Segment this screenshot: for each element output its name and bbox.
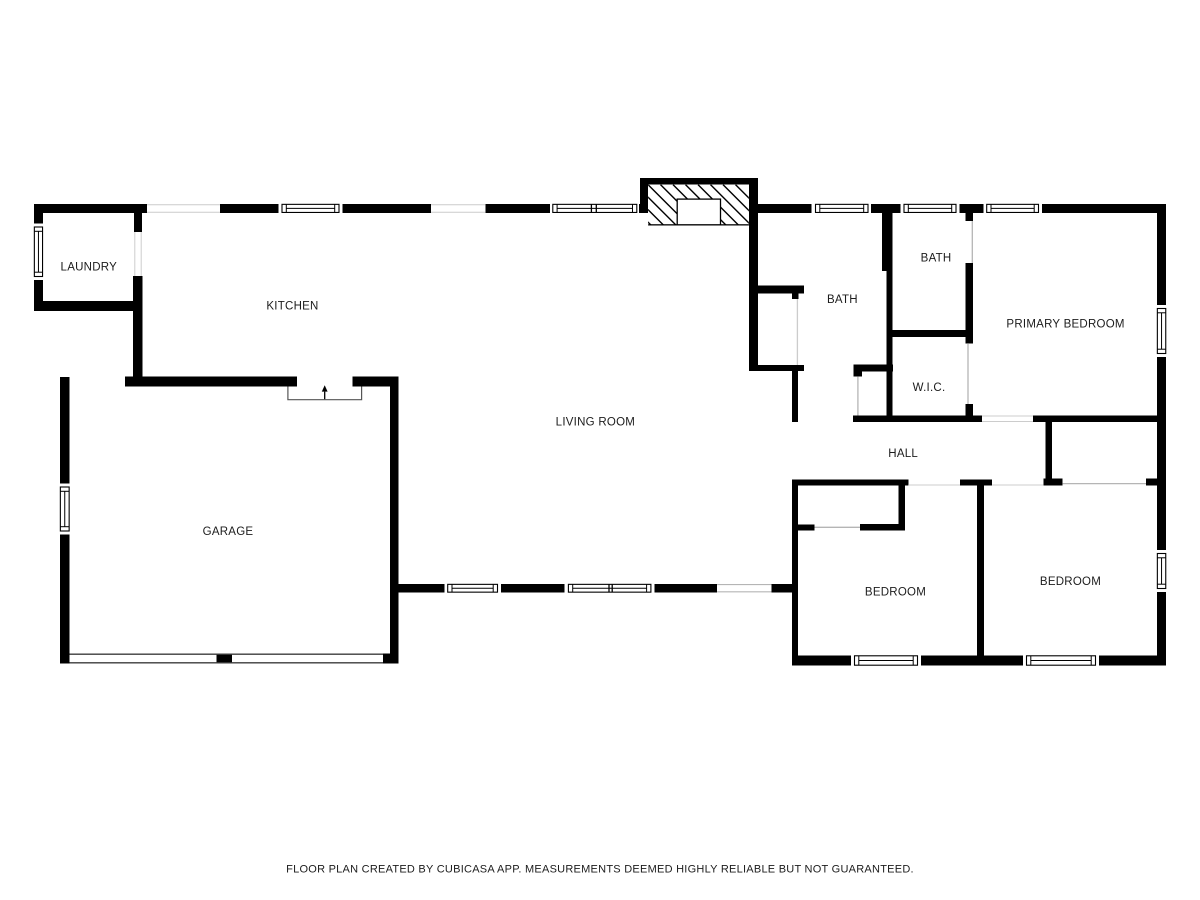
svg-text:FLOOR PLAN CREATED BY CUBICASA: FLOOR PLAN CREATED BY CUBICASA APP. MEAS… (286, 864, 914, 876)
svg-text:LIVING ROOM: LIVING ROOM (556, 417, 635, 429)
svg-text:BATH: BATH (921, 252, 952, 264)
svg-text:HALL: HALL (888, 448, 918, 460)
svg-text:BEDROOM: BEDROOM (865, 586, 926, 598)
svg-text:GARAGE: GARAGE (203, 526, 254, 538)
svg-text:PRIMARY BEDROOM: PRIMARY BEDROOM (1006, 319, 1124, 331)
svg-text:LAUNDRY: LAUNDRY (61, 262, 118, 274)
svg-text:W.I.C.: W.I.C. (913, 382, 946, 394)
svg-text:KITCHEN: KITCHEN (266, 301, 318, 313)
svg-text:BATH: BATH (827, 294, 858, 306)
svg-text:BEDROOM: BEDROOM (1040, 576, 1101, 588)
